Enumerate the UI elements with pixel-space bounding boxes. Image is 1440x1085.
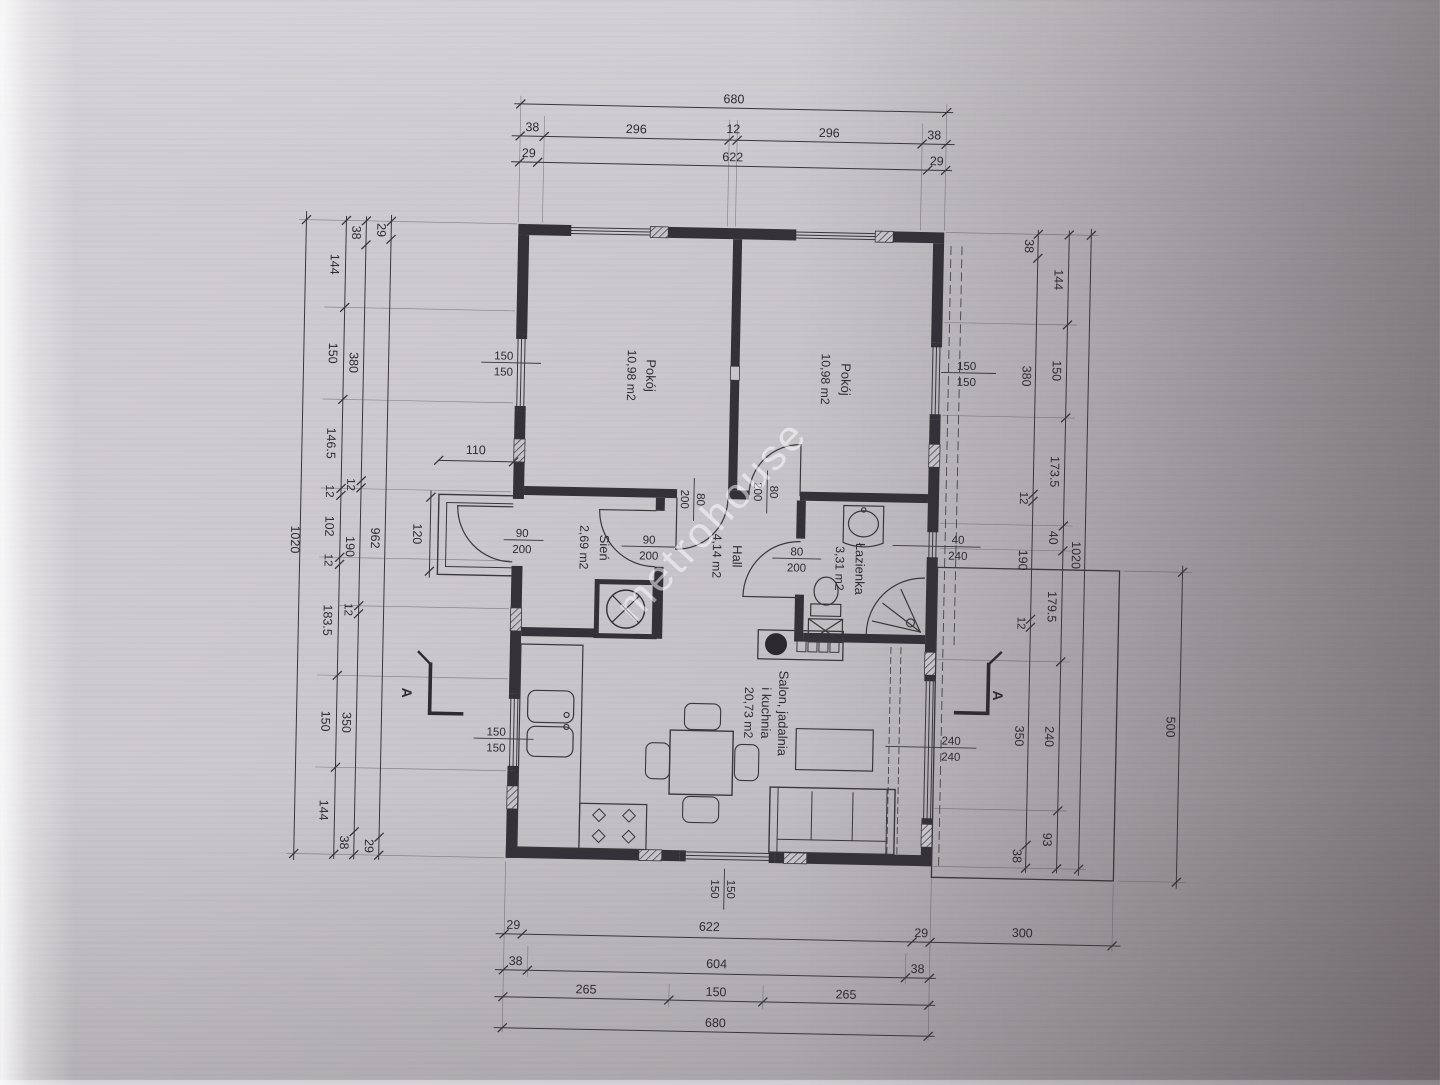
room-name: Salon, jadalnia	[775, 671, 792, 757]
dim: 29	[362, 839, 376, 853]
dim: 183.5	[320, 604, 335, 636]
door-label: 80 200	[772, 546, 821, 575]
room-name: i kuchnia	[758, 687, 774, 739]
dim: 380	[346, 352, 360, 373]
dim: 12	[323, 485, 335, 498]
svg-text:150: 150	[486, 726, 505, 738]
dim: 190	[1016, 550, 1030, 571]
window-label: 150 150	[474, 726, 534, 755]
svg-text:200: 200	[678, 490, 690, 509]
stove	[579, 803, 647, 849]
sofa	[769, 787, 895, 854]
dim: 680	[723, 92, 744, 106]
dim: 265	[575, 982, 596, 996]
dim: 38	[509, 954, 523, 968]
coffee-table	[796, 729, 874, 772]
chair	[684, 703, 721, 730]
dim: 146.5	[324, 427, 339, 459]
dim: 350	[339, 712, 353, 733]
window-label: 150 150	[941, 360, 996, 389]
dim: 29	[374, 223, 388, 237]
svg-text:80: 80	[790, 546, 803, 558]
room-name: Hall	[730, 545, 745, 568]
dim: 144	[327, 254, 341, 275]
dim: 29	[506, 918, 520, 932]
svg-text:90: 90	[516, 528, 529, 540]
dim: 150	[1049, 360, 1063, 381]
room-name: Pokój	[643, 359, 659, 392]
room-area: 3,31 m2	[832, 546, 847, 591]
dim: 29	[930, 154, 944, 168]
windows	[506, 226, 945, 866]
dim: 38	[927, 128, 941, 142]
dim: 102	[322, 516, 336, 537]
furniture	[517, 644, 898, 855]
dim: 680	[705, 1016, 726, 1030]
dim: 622	[699, 920, 720, 934]
dim: 962	[368, 528, 382, 549]
dim: 12	[342, 603, 354, 616]
room-name: Sień	[597, 535, 613, 561]
dim: 240	[1042, 726, 1056, 747]
kitchen-sink-bowl	[527, 690, 574, 723]
stove-burner-circle	[765, 633, 787, 655]
chair	[734, 744, 759, 780]
dim: 144	[1051, 269, 1065, 290]
dim: 12	[344, 478, 356, 491]
dim: 622	[722, 150, 743, 164]
dim: 12	[321, 554, 333, 567]
svg-text:200: 200	[787, 562, 806, 574]
section-label: A	[990, 690, 1006, 700]
dim: 12	[1017, 492, 1029, 505]
svg-text:240: 240	[948, 551, 967, 563]
window-label: 150 150	[481, 350, 541, 379]
drawing: A A 680 38	[278, 83, 1201, 1045]
dim: 500	[1163, 717, 1177, 738]
svg-text:150: 150	[494, 366, 513, 378]
svg-text:150: 150	[724, 880, 736, 899]
room-area: 2,69 m2	[576, 525, 591, 570]
terrace-outline	[931, 567, 1119, 881]
dim: 38	[910, 962, 924, 976]
svg-text:150: 150	[486, 742, 505, 754]
svg-text:90: 90	[643, 534, 656, 546]
door-label: 90 200	[504, 528, 544, 557]
dim: 38	[1010, 849, 1024, 863]
dim: 110	[466, 443, 486, 457]
svg-text:200: 200	[512, 544, 531, 556]
dim: 380	[1019, 366, 1033, 387]
svg-text:240: 240	[941, 735, 960, 747]
dim: 29	[522, 146, 536, 160]
section-markers: A A	[399, 641, 1007, 725]
dim: 38	[1022, 239, 1036, 253]
dim: 300	[1012, 926, 1033, 940]
dim: 120	[410, 523, 424, 544]
svg-text:150: 150	[494, 350, 513, 362]
room-area: 10,98 m2	[818, 353, 833, 405]
dim: 29	[914, 926, 928, 940]
svg-text:240: 240	[941, 751, 960, 763]
dim: 173.5	[1047, 456, 1062, 488]
svg-text:150: 150	[708, 879, 720, 898]
dim: 38	[525, 120, 539, 134]
entrance-door-arc	[457, 506, 513, 562]
dim: 150	[318, 711, 332, 732]
chair	[682, 796, 719, 823]
window-label: 150 150	[708, 869, 737, 910]
dim: 38	[337, 835, 351, 849]
kitchen-sink-bowl	[527, 726, 574, 757]
dim: 93	[1040, 833, 1054, 847]
dim: 350	[1012, 725, 1026, 746]
chair	[645, 743, 670, 779]
dim: 604	[706, 957, 727, 971]
dim: 12	[726, 122, 740, 136]
blueprint-photo: A A 680 38	[0, 0, 1440, 1080]
dim: 179.5	[1045, 591, 1060, 623]
dim: 190	[343, 536, 357, 557]
section-label: A	[399, 688, 415, 698]
dim: 1020	[1069, 541, 1084, 569]
svg-text:40: 40	[952, 535, 965, 547]
dim: 38	[349, 226, 363, 240]
dim: 265	[835, 987, 856, 1001]
dim: 296	[819, 126, 840, 140]
room-area: 10,98 m2	[624, 349, 639, 401]
dim: 1020	[288, 525, 303, 553]
room-area: 20,73 m2	[741, 687, 756, 739]
dim: 150	[326, 343, 340, 364]
dim: 12	[1014, 617, 1026, 630]
room-name: Pokój	[838, 363, 854, 396]
svg-text:150: 150	[957, 361, 976, 373]
window-frame-blocks	[506, 334, 942, 866]
dim: 144	[316, 800, 330, 821]
room-labels: Pokój 10,98 m2 Pokój 10,98 m2 Sień 2,69 …	[573, 349, 872, 759]
svg-text:150: 150	[957, 377, 976, 389]
dim: 296	[626, 122, 647, 136]
dining-table	[669, 730, 733, 795]
dim: 40	[1046, 531, 1060, 545]
room-name: Łazienka	[852, 543, 868, 596]
dim: 150	[705, 985, 726, 999]
